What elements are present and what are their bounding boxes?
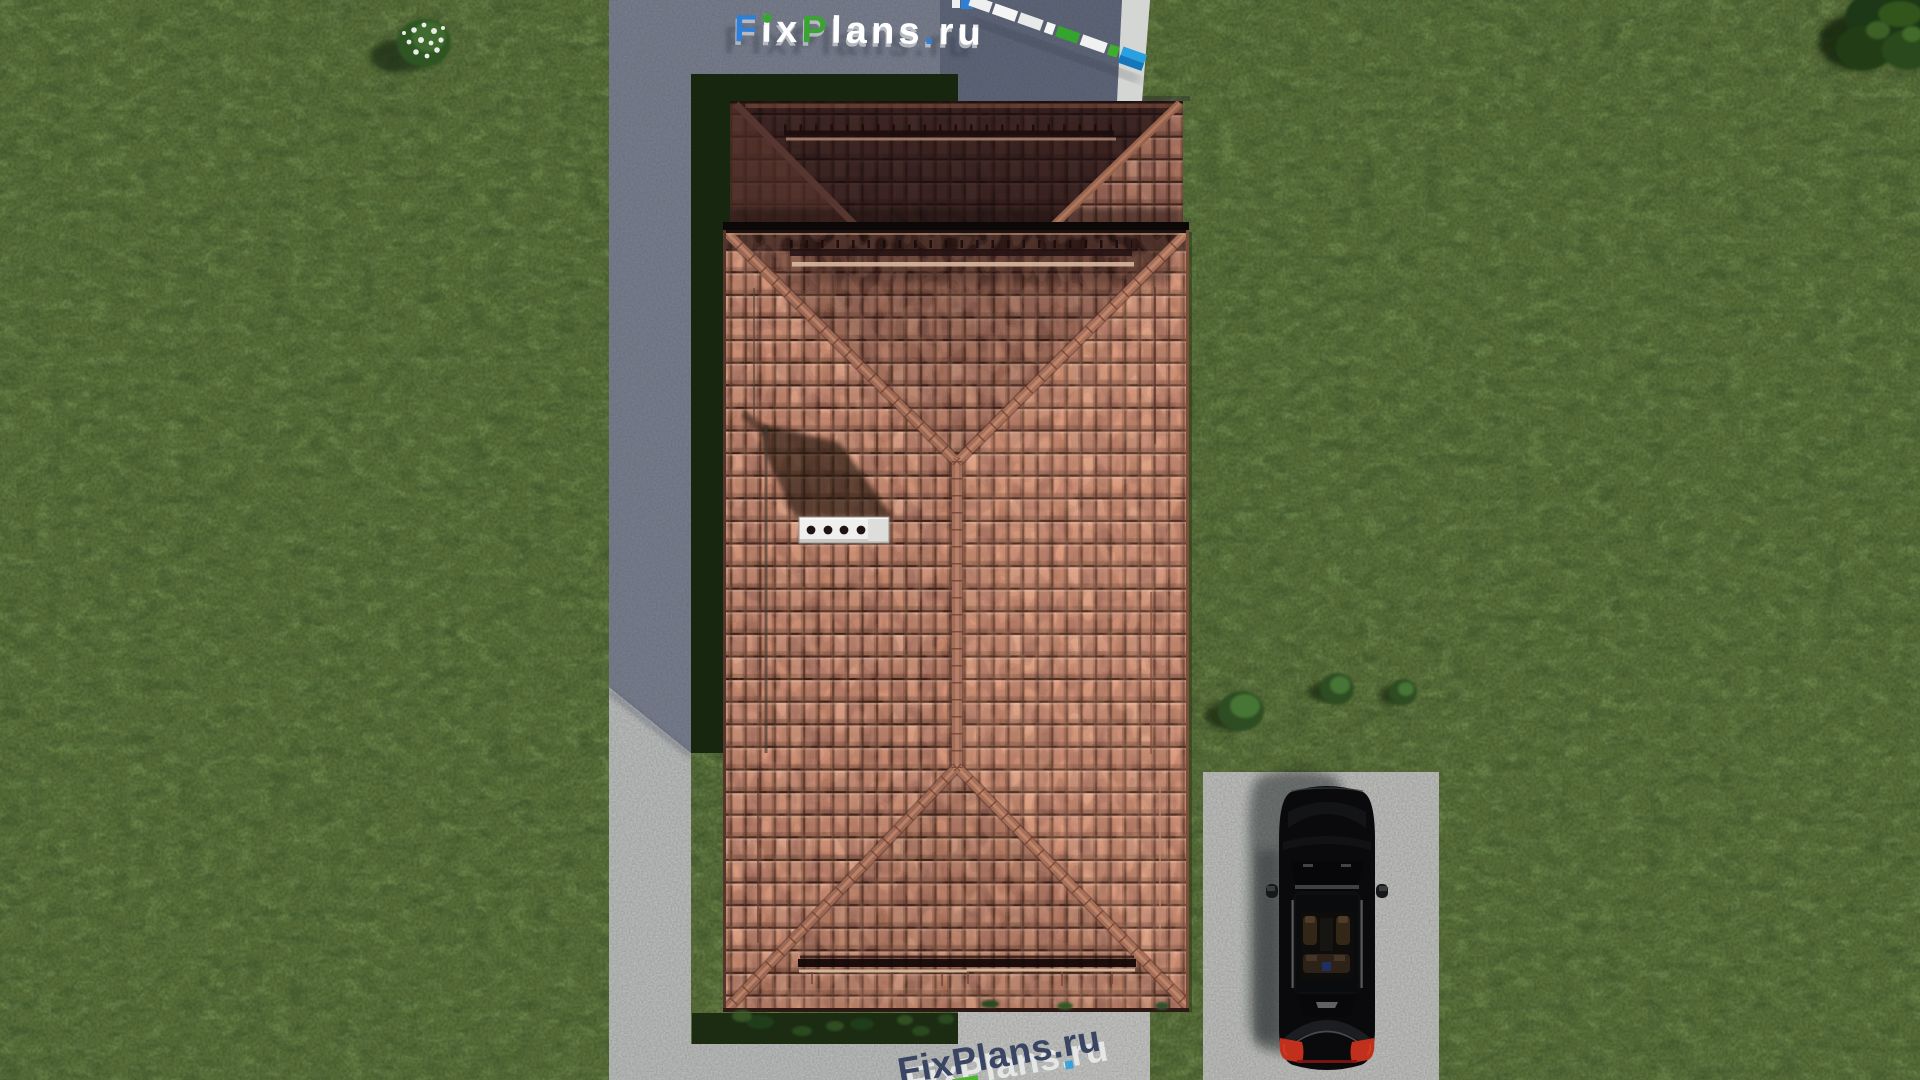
- svg-text:FixPlans.ru: FixPlans.ru: [734, 8, 986, 54]
